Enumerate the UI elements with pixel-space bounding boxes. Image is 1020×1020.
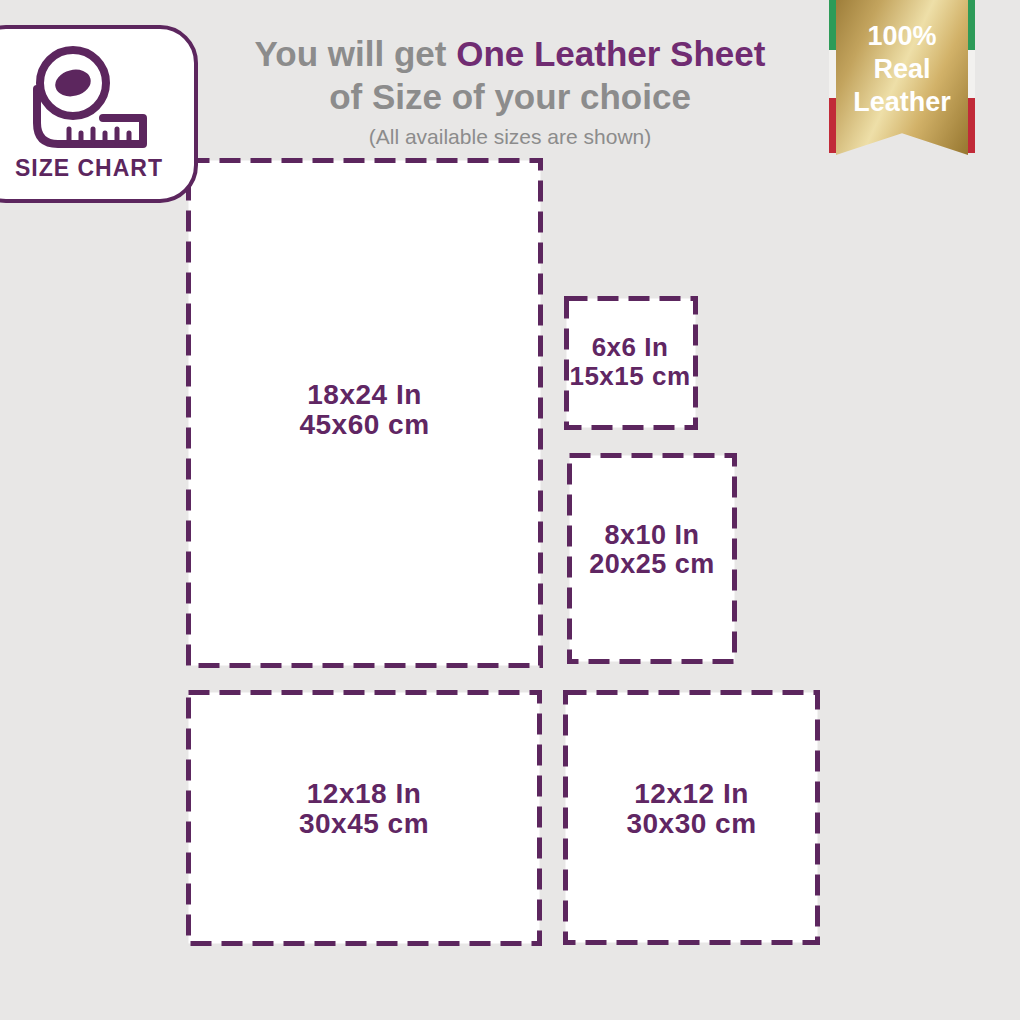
- size-cm: 45x60 cm: [186, 410, 543, 440]
- size-label-12x18: 12x18 In 30x45 cm: [186, 779, 542, 839]
- size-inches: 6x6 In: [562, 333, 698, 362]
- size-label-8x10: 8x10 In 20x25 cm: [567, 521, 737, 579]
- size-label-6x6: 6x6 In 15x15 cm: [562, 333, 698, 391]
- size-chart-infographic: { "page": { "background": "#e8e7e6", "ac…: [0, 0, 1020, 1020]
- measuring-tape-icon: [23, 43, 157, 153]
- badge-line-3: Leather: [836, 86, 968, 119]
- size-cm: 30x45 cm: [186, 809, 542, 839]
- size-inches: 8x10 In: [567, 521, 737, 550]
- size-cm: 20x25 cm: [567, 550, 737, 579]
- size-chart-card-label: SIZE CHART: [15, 155, 163, 182]
- size-cm: 15x15 cm: [562, 362, 698, 391]
- title-highlight: One Leather Sheet: [456, 34, 765, 73]
- badge-line-1: 100%: [836, 20, 968, 53]
- size-inches: 12x12 In: [563, 779, 820, 809]
- badge-line-2: Real: [836, 53, 968, 86]
- size-label-18x24: 18x24 In 45x60 cm: [186, 380, 543, 440]
- size-chart-card: SIZE CHART: [0, 25, 198, 203]
- size-cm: 30x30 cm: [563, 809, 820, 839]
- title-prefix: You will get: [255, 34, 457, 73]
- size-inches: 12x18 In: [186, 779, 542, 809]
- size-label-12x12: 12x12 In 30x30 cm: [563, 779, 820, 839]
- size-inches: 18x24 In: [186, 380, 543, 410]
- real-leather-badge: 100% Real Leather: [836, 0, 968, 155]
